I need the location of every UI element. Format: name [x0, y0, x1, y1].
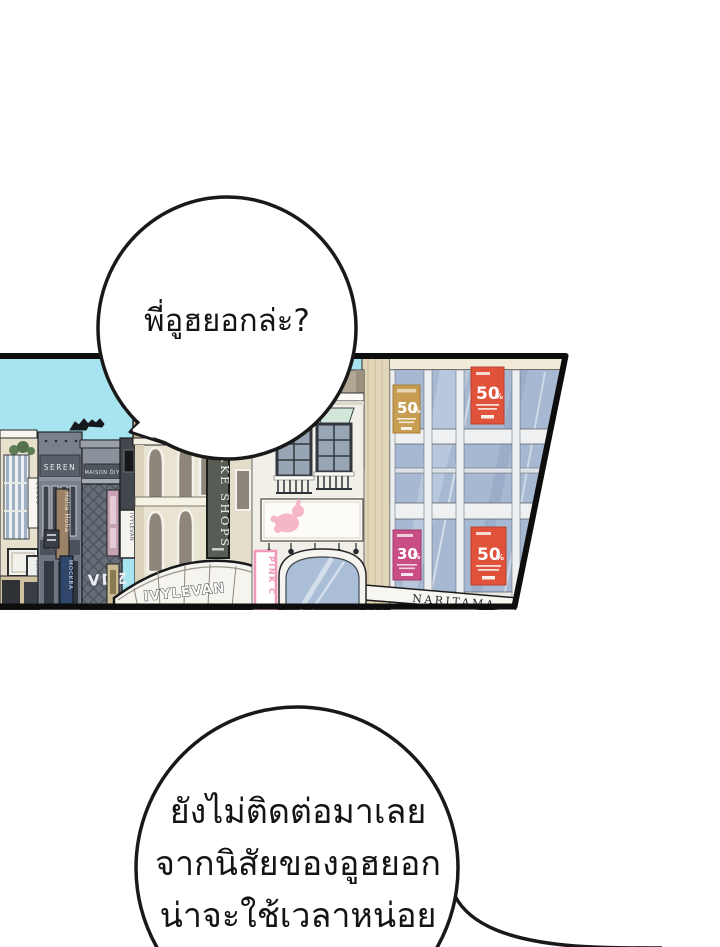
- svg-text:%: %: [413, 552, 421, 561]
- arched-window: [148, 448, 163, 500]
- bubble-secondary-arc: [455, 896, 662, 947]
- sign-maison-label: MAISON ÔIY: [84, 469, 120, 476]
- bottom-speech-line: น่าจะใช้เวลาหน่อย: [135, 890, 461, 942]
- sign-holia-label: Holia Holia: [63, 492, 71, 533]
- arch-glass: [286, 557, 359, 610]
- sign-mockba-label: MOCKBA: [67, 560, 73, 590]
- poster-sale-red-top: 50 %: [471, 367, 504, 424]
- top-speech-text: พี่อูฮยอกล่ะ?: [100, 301, 354, 341]
- svg-text:%: %: [496, 553, 504, 562]
- window: [43, 486, 49, 536]
- bottom-speech-line: จากนิสัยของอูฮยอก: [135, 838, 461, 890]
- bottom-speech-line: ยังไม่ติดต่อมาเลย: [135, 786, 461, 838]
- poster-sale-gold: 50 %: [393, 385, 421, 433]
- bottom-speech-text: ยังไม่ติดต่อมาเลย จากนิสัยของอูฮยอก น่าจ…: [135, 786, 461, 942]
- svg-text:%: %: [495, 392, 503, 401]
- comic-page: ECOCO KERIPS SEREN PRIER: [0, 0, 720, 947]
- poster-sale-pink: 30 %: [393, 530, 421, 580]
- poster-sale-red-bottom: 50 %: [471, 527, 506, 585]
- sign-pink-c-label: PINK C: [267, 556, 276, 595]
- svg-text:%: %: [413, 406, 421, 415]
- sign-seren-label: SEREN: [44, 463, 77, 472]
- sign-ivylevan-side-label: IVYLEVAN: [128, 513, 134, 541]
